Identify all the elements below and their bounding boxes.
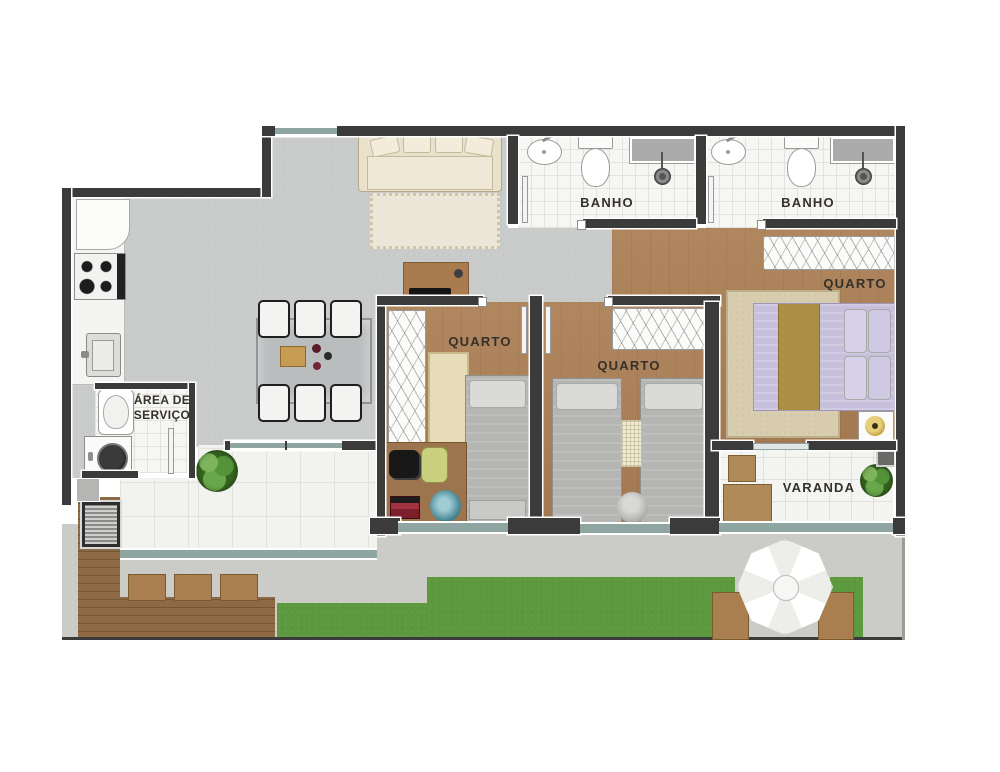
room-label-service: ÁREA DE SERVIÇO xyxy=(126,393,198,423)
master-bed xyxy=(753,303,895,411)
room-label-bath2: BANHO xyxy=(770,195,846,211)
washer-door xyxy=(97,443,128,474)
wall-bedrooms-divider xyxy=(530,296,542,524)
pillar-block xyxy=(76,478,100,502)
tv xyxy=(409,288,451,295)
wall-left xyxy=(62,188,71,505)
plan-bottom-edge xyxy=(62,637,905,640)
dining-chair xyxy=(258,300,290,338)
wall-top-left xyxy=(62,188,271,197)
dining-chair xyxy=(330,384,362,422)
shower-head-icon xyxy=(855,168,872,185)
lounge-chair xyxy=(174,574,212,601)
sofa-cushion xyxy=(464,135,495,158)
door-jamb xyxy=(577,220,586,230)
room-label-bedroom1: QUARTO xyxy=(430,334,530,350)
sink-drain xyxy=(542,150,546,154)
patio-umbrella xyxy=(737,539,833,635)
room-label-master: QUARTO xyxy=(815,276,895,292)
dining-bottles xyxy=(324,352,332,360)
room-label-bath1: BANHO xyxy=(569,195,645,211)
window-top xyxy=(275,126,337,136)
wall-bedroom-bottom-a xyxy=(370,518,400,534)
wall-bedroom-bottom-c xyxy=(670,518,720,534)
lamp-center xyxy=(872,423,878,429)
desk-chair-black xyxy=(389,450,419,478)
desk-chair-lime xyxy=(421,447,448,483)
dining-tray xyxy=(280,346,306,367)
bedroom2-pillow xyxy=(556,383,618,410)
window-balcony-rail xyxy=(719,521,893,534)
tv-stand-plant xyxy=(454,269,463,278)
kitchen-sink-basin xyxy=(92,340,114,371)
stove-panel xyxy=(117,254,125,299)
wall-top xyxy=(262,126,905,136)
stove xyxy=(74,253,126,300)
shower-hose xyxy=(862,152,864,168)
bath1-shower-ledge xyxy=(630,137,696,163)
bedroom1-bed xyxy=(465,375,530,525)
sink-drain xyxy=(726,150,730,154)
wall-bedroom-bottom-b xyxy=(508,518,580,534)
wall-service-bottom xyxy=(82,471,138,478)
bath1-toilet-bowl xyxy=(581,148,610,187)
desk-books xyxy=(390,496,420,519)
wall-master-left xyxy=(705,302,719,524)
master-pillow xyxy=(844,356,867,400)
sofa-seat xyxy=(367,156,493,190)
wall-balcony-top-left xyxy=(712,441,753,450)
umbrella-hub xyxy=(773,575,799,601)
bedroom2-bed-right xyxy=(640,378,707,526)
dining-chair xyxy=(330,300,362,338)
bath2-door-leaf xyxy=(708,176,714,223)
sofa-cushion xyxy=(435,136,463,153)
window-bedroom2 xyxy=(580,522,670,535)
service-door-leaf xyxy=(168,428,174,474)
wall-bath1-left xyxy=(508,136,518,224)
window-bedroom1 xyxy=(398,521,508,534)
floor-plan: BANHO BANHO QUARTO QUARTO QUARTO ÁREA DE… xyxy=(0,0,1000,772)
window-terrace-rail xyxy=(120,548,377,560)
balcony-bench-small xyxy=(728,455,756,482)
bedroom2-wardrobe xyxy=(612,308,707,350)
balcony-drain-box xyxy=(876,450,896,467)
shower-hose xyxy=(661,152,663,168)
bedroom2-bed-left xyxy=(552,378,622,526)
faucet-icon xyxy=(81,351,89,358)
master-pillow xyxy=(844,309,867,353)
bedroom2-door-leaf xyxy=(545,306,551,354)
shower-head-icon xyxy=(654,168,671,185)
bath1-sink xyxy=(527,139,562,165)
dining-bottles xyxy=(313,362,321,370)
room-label-balcony: VARANDA xyxy=(773,480,865,496)
door-jamb xyxy=(604,297,613,307)
bath2-sink xyxy=(711,139,746,165)
bedroom1-rug xyxy=(428,352,469,446)
sofa-cushion xyxy=(403,136,431,153)
master-bed-runner xyxy=(778,304,820,410)
bedroom1-bed-foot xyxy=(469,500,526,520)
window-living-1 xyxy=(230,441,285,450)
bedroom2-round-rug xyxy=(617,492,648,523)
terrace-floor-left xyxy=(120,478,198,551)
wall-bath-divider xyxy=(696,136,706,224)
bath1-door-leaf xyxy=(522,176,528,223)
fridge xyxy=(76,199,130,250)
table-lamp-icon xyxy=(865,416,885,436)
wall-bedroom1-left xyxy=(377,296,385,536)
plan-right-edge xyxy=(902,524,905,640)
master-pillow xyxy=(868,309,891,353)
wall-service-top xyxy=(95,383,195,389)
wall-balcony-corner xyxy=(893,518,905,534)
master-nightstand xyxy=(858,411,894,444)
living-rug xyxy=(370,193,500,249)
terrace-plant xyxy=(196,450,238,492)
room-label-bedroom2: QUARTO xyxy=(588,358,670,374)
wall-bedroom1-top xyxy=(377,296,483,305)
dining-chair xyxy=(294,300,326,338)
balcony-bench-large xyxy=(723,484,772,523)
bedroom2-pillow xyxy=(644,383,703,410)
wall-right xyxy=(896,126,905,536)
grass-lawn-center xyxy=(427,577,735,640)
washer-knob xyxy=(88,452,93,461)
ac-grille-vent xyxy=(80,500,122,549)
bedroom1-pillow xyxy=(469,380,526,408)
wall-bath1-bottom xyxy=(583,219,696,228)
master-pillow xyxy=(868,356,891,400)
dining-chair xyxy=(294,384,326,422)
door-jamb xyxy=(478,297,487,307)
door-jamb xyxy=(757,220,766,230)
bath2-toilet-bowl xyxy=(787,148,816,187)
lounge-chair xyxy=(128,574,166,601)
grass-lawn-left xyxy=(277,603,427,640)
wall-step xyxy=(262,127,271,197)
dining-bottles xyxy=(312,344,321,353)
window-living-2 xyxy=(287,441,342,450)
bedroom1-round-rug xyxy=(430,490,461,522)
dining-chair xyxy=(258,384,290,422)
grille-louvers xyxy=(85,505,117,544)
wood-deck-band xyxy=(78,597,275,640)
master-wardrobe xyxy=(763,236,895,270)
wall-bedroom2-top xyxy=(608,296,720,305)
sofa xyxy=(358,133,502,192)
sofa-cushion xyxy=(369,134,400,157)
wall-balcony-top-right xyxy=(807,441,896,450)
balcony-sliding-door xyxy=(753,443,809,450)
lounge-chair xyxy=(220,574,258,601)
kitchen-sink xyxy=(86,333,121,377)
bedroom2-mat xyxy=(621,420,642,467)
bedroom1-wardrobe xyxy=(388,310,426,448)
wall-bath2-bottom xyxy=(763,219,896,228)
tv-stand xyxy=(403,262,469,300)
